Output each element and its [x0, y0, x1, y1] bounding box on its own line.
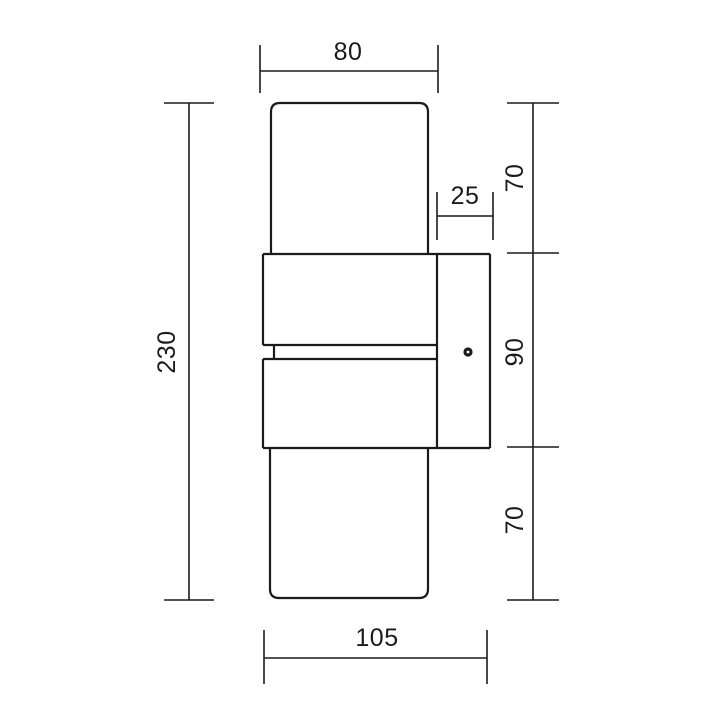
screw-inner	[467, 351, 470, 354]
dimension-label-90: 90	[501, 338, 529, 367]
top-diffuser-outline	[271, 103, 428, 255]
dim-depth-105: 105	[264, 624, 487, 684]
dim-width-80: 80	[260, 38, 438, 93]
dim-height-stack-right: 70 90 70	[501, 103, 559, 600]
wall-lamp-dimension-drawing: 80 25 105 230	[0, 0, 720, 720]
dim-plate-depth-25: 25	[437, 182, 493, 240]
dimension-label: 230	[153, 330, 181, 373]
dimension-drawing-page: 80 25 105 230	[0, 0, 720, 720]
dim-height-230: 230	[153, 103, 214, 600]
dimension-label-top-70: 70	[501, 164, 529, 193]
dimension-label: 25	[451, 182, 480, 210]
lamp-outline	[263, 103, 490, 598]
dimension-label: 105	[355, 624, 398, 652]
dimension-label: 80	[334, 38, 363, 66]
mount-screw-icon	[463, 347, 472, 356]
bottom-diffuser-outline	[270, 448, 428, 598]
dimension-label-bottom-70: 70	[501, 506, 529, 535]
